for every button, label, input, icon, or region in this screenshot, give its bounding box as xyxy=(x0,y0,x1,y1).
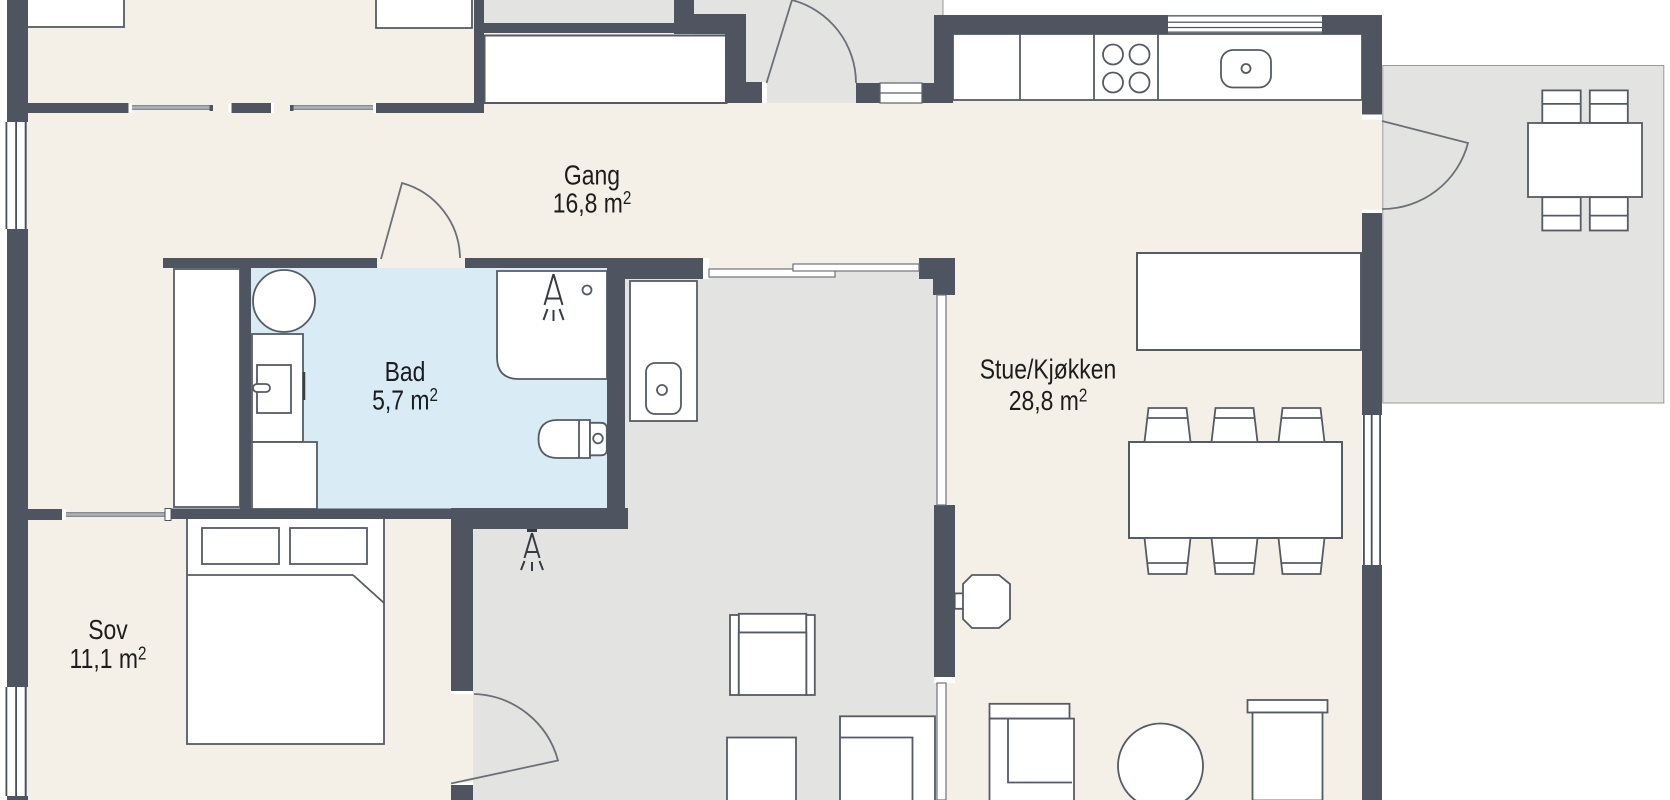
svg-text:28,8 m2: 28,8 m2 xyxy=(1009,385,1088,416)
svg-text:Stue/Kjøkken: Stue/Kjøkken xyxy=(980,354,1116,385)
svg-text:16,8 m2: 16,8 m2 xyxy=(553,188,632,219)
svg-text:Sov: Sov xyxy=(88,615,128,646)
svg-text:11,1 m2: 11,1 m2 xyxy=(70,643,147,674)
svg-text:5,7 m2: 5,7 m2 xyxy=(372,385,438,416)
svg-text:Bad: Bad xyxy=(385,357,426,388)
svg-text:Gang: Gang xyxy=(564,160,620,191)
